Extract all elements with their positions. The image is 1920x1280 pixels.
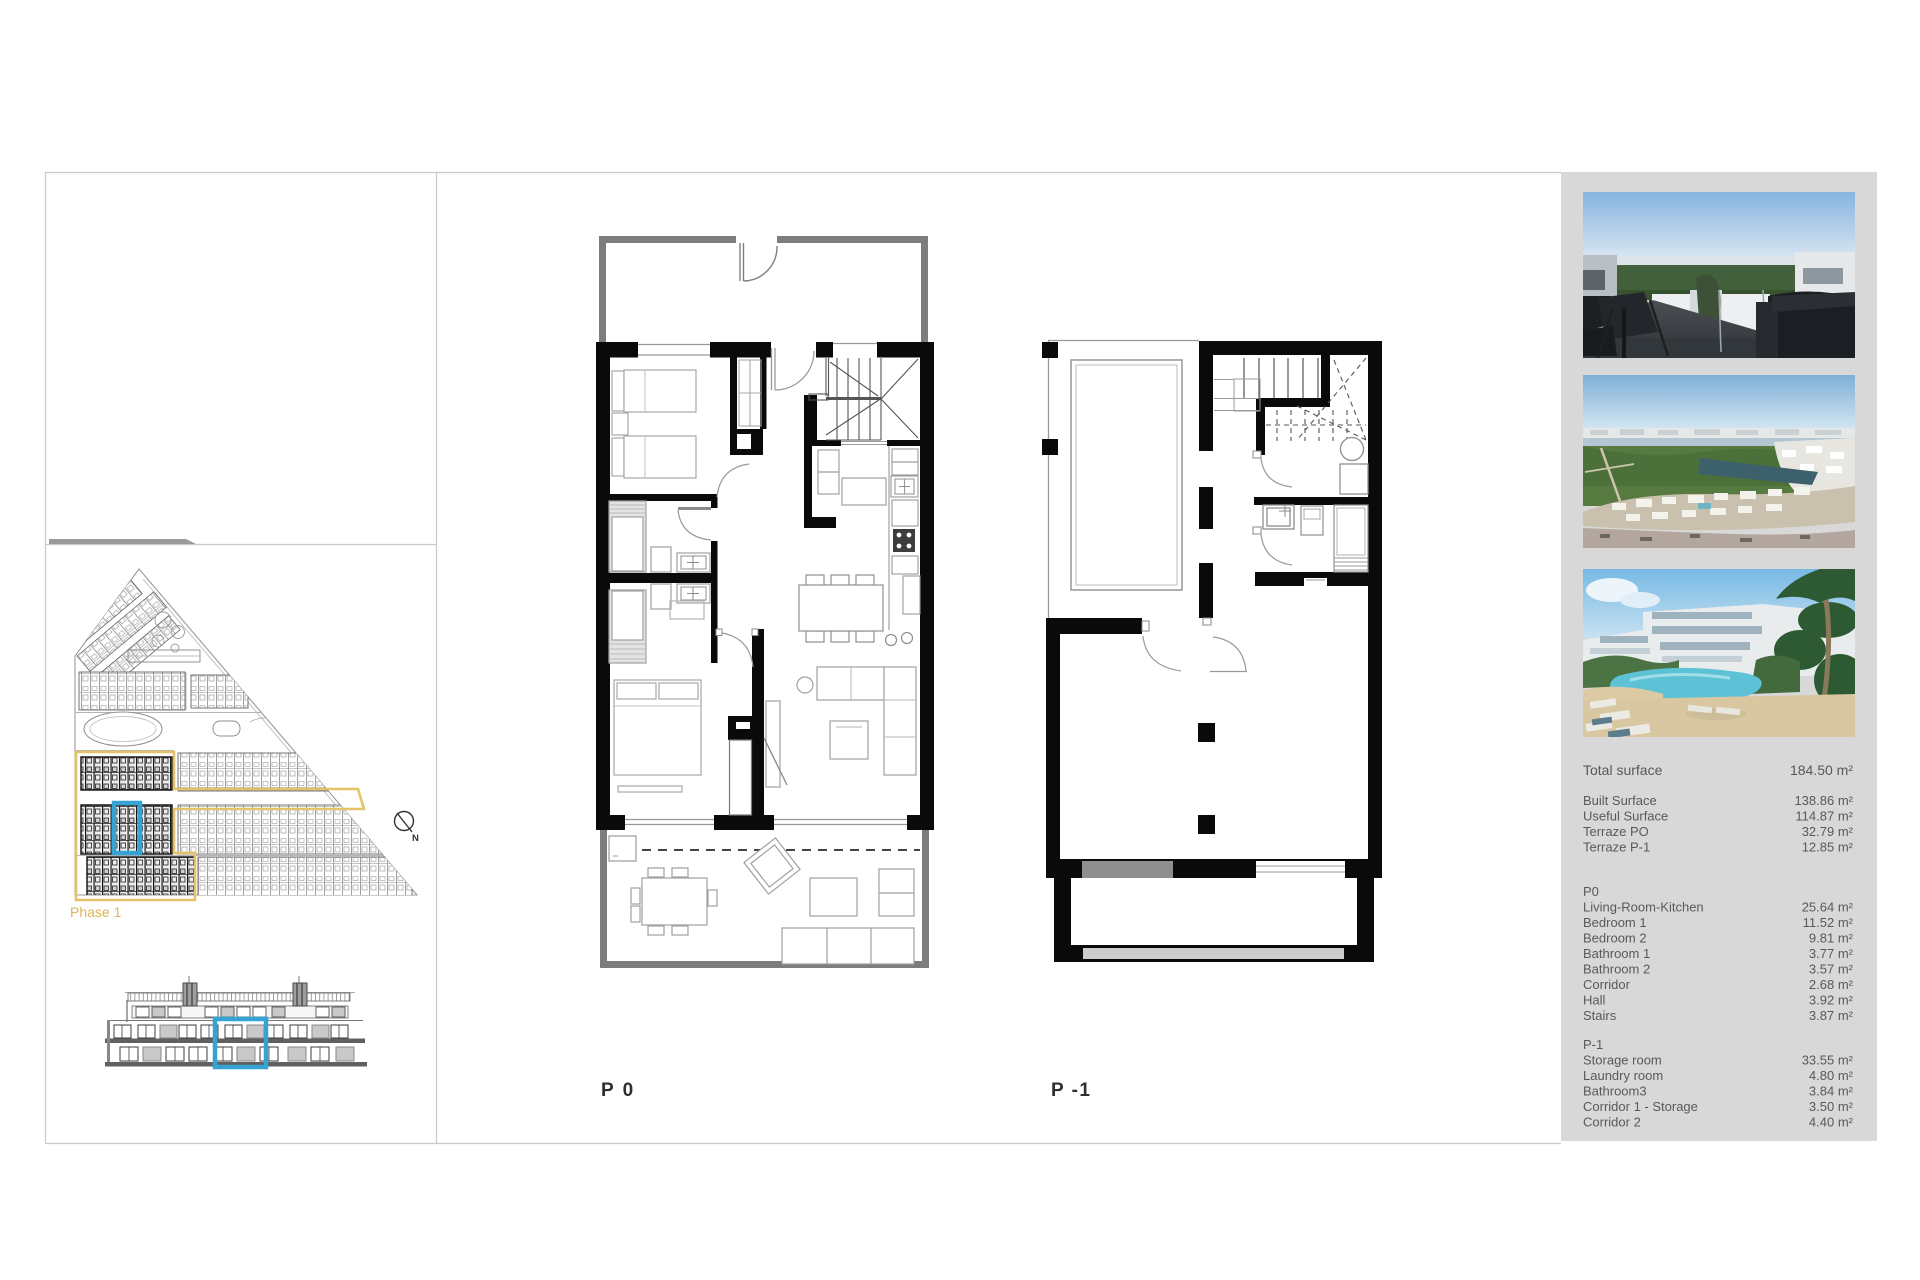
svg-text:Corridor: Corridor	[1583, 977, 1631, 992]
svg-text:Hall: Hall	[1583, 993, 1606, 1008]
svg-text:Corridor 2: Corridor 2	[1583, 1115, 1641, 1130]
svg-text:3.84 m²: 3.84 m²	[1809, 1084, 1854, 1099]
svg-text:Laundry room: Laundry room	[1583, 1068, 1663, 1083]
svg-text:Bedroom 1: Bedroom 1	[1583, 915, 1647, 930]
svg-text:114.87 m²: 114.87 m²	[1795, 809, 1853, 824]
svg-text:N: N	[412, 833, 419, 844]
svg-text:25.64 m²: 25.64 m²	[1802, 900, 1854, 915]
svg-text:3.50 m²: 3.50 m²	[1809, 1099, 1854, 1114]
svg-text:P -1: P -1	[1051, 1080, 1092, 1101]
svg-text:12.85 m²: 12.85 m²	[1802, 840, 1854, 855]
svg-text:32.79 m²: 32.79 m²	[1802, 824, 1854, 839]
svg-text:Bedroom 2: Bedroom 2	[1583, 931, 1647, 946]
svg-text:4.80 m²: 4.80 m²	[1809, 1068, 1854, 1083]
svg-text:3.77 m²: 3.77 m²	[1809, 946, 1854, 961]
svg-text:Bathroom 2: Bathroom 2	[1583, 962, 1650, 977]
svg-text:11.52 m²: 11.52 m²	[1803, 915, 1854, 930]
svg-text:Stairs: Stairs	[1583, 1008, 1617, 1023]
svg-text:Corridor 1 - Storage: Corridor 1 - Storage	[1583, 1099, 1698, 1114]
svg-text:3.87 m²: 3.87 m²	[1809, 1008, 1854, 1023]
svg-text:138.86 m²: 138.86 m²	[1794, 793, 1853, 808]
svg-text:Terraze P-1: Terraze P-1	[1583, 840, 1650, 855]
svg-text:P-1: P-1	[1583, 1037, 1603, 1052]
svg-text:Storage room: Storage room	[1583, 1053, 1662, 1068]
svg-text:9.81 m²: 9.81 m²	[1809, 931, 1854, 946]
svg-text:Bathroom3: Bathroom3	[1583, 1084, 1647, 1099]
svg-text:Living-Room-Kitchen: Living-Room-Kitchen	[1583, 900, 1704, 915]
svg-text:3.92 m²: 3.92 m²	[1809, 993, 1854, 1008]
svg-text:4.40 m²: 4.40 m²	[1809, 1115, 1854, 1130]
svg-text:P 0: P 0	[601, 1080, 635, 1101]
svg-text:Bathroom 1: Bathroom 1	[1583, 946, 1650, 961]
svg-text:2.68 m²: 2.68 m²	[1809, 977, 1854, 992]
svg-text:3.57 m²: 3.57 m²	[1809, 962, 1854, 977]
svg-text:184.50 m²: 184.50 m²	[1790, 762, 1853, 778]
svg-text:Useful Surface: Useful Surface	[1583, 809, 1668, 824]
svg-text:Terraze PO: Terraze PO	[1583, 824, 1649, 839]
svg-text:33.55 m²: 33.55 m²	[1802, 1053, 1854, 1068]
svg-text:Total surface: Total surface	[1583, 762, 1663, 778]
svg-text:P0: P0	[1583, 884, 1599, 899]
svg-text:Built Surface: Built Surface	[1583, 793, 1657, 808]
svg-text:Phase 1: Phase 1	[70, 904, 122, 920]
